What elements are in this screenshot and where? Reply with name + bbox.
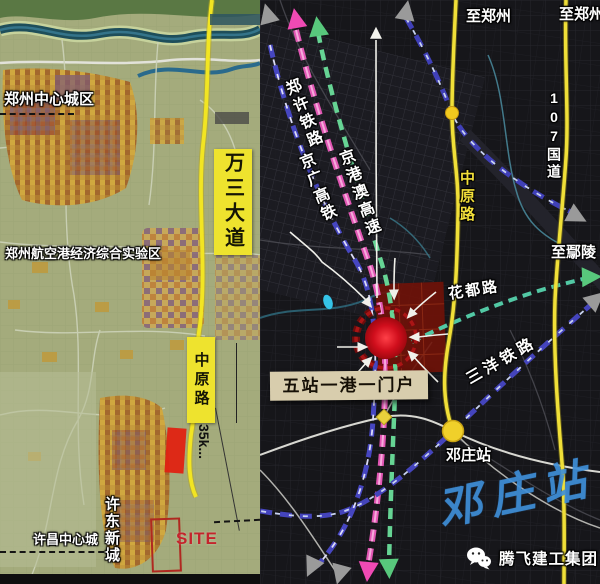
zhongyuan-road-label-right: 中原路 <box>456 170 477 224</box>
station-dot-north <box>446 107 459 120</box>
dimension-line <box>236 343 237 423</box>
distance-annotation: 35k... <box>196 424 212 459</box>
to-zhengzhou-label-right: 至郑州 <box>559 3 600 24</box>
airport-zone-label: 郑州航空港经济综合实验区 <box>5 243 161 262</box>
g107-label: 107国道 <box>544 90 564 181</box>
boundary-dashed-line <box>0 113 74 115</box>
hub-marker <box>365 317 407 359</box>
xuchang-center-label: 许昌中心城 <box>33 529 98 548</box>
wechat-icon <box>466 545 492 571</box>
right-transit-map: 至郑州 至郑州 107国道 至鄢陵 中原路 花都路 三洋铁路 郑许铁路 京广高铁… <box>260 0 600 584</box>
boundary-dashed-line-bottom <box>0 551 114 553</box>
zhongyuan-road-label-left: 中原路 <box>187 337 215 423</box>
photo-edge <box>0 574 260 584</box>
left-planning-map: 郑州中心城区 郑州航空港经济综合实验区 万三大道 中原路 35k... 许昌中心… <box>0 0 260 584</box>
dengzhuang-station-label: 邓庄站 <box>446 444 491 465</box>
hub-callout: 五站一港一门户 <box>270 370 428 400</box>
dengzhuang-station-dot <box>443 421 464 442</box>
site-area-marker <box>164 427 186 473</box>
brand-footer: 腾飞建工集团 <box>466 545 598 571</box>
to-zhengzhou-label-left: 至郑州 <box>466 5 511 26</box>
to-yanling-label: 至鄢陵 <box>551 241 596 262</box>
zhengzhou-center-label: 郑州中心城区 <box>4 88 94 109</box>
map-banner <box>210 14 260 25</box>
wansan-avenue-label: 万三大道 <box>214 149 252 255</box>
map-graphic: 郑州中心城区 郑州航空港经济综合实验区 万三大道 中原路 35k... 许昌中心… <box>0 0 600 584</box>
brand-name: 腾飞建工集团 <box>499 547 598 569</box>
xudong-newtown-label: 许东新城 <box>101 496 122 564</box>
small-badge <box>215 112 249 124</box>
site-label: SITE <box>176 529 218 549</box>
